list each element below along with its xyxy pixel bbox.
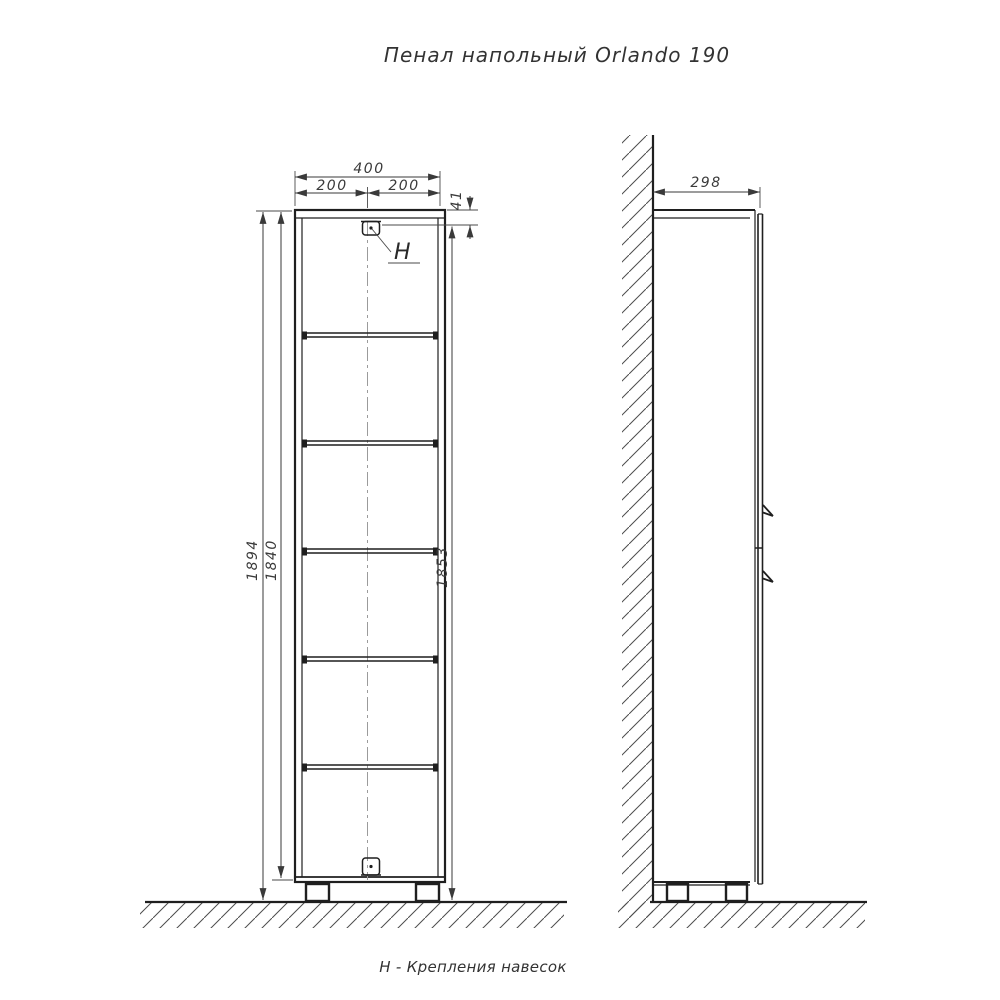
front-cabinet-carcass	[295, 210, 445, 882]
shelf-3	[302, 548, 438, 556]
front-shelves	[302, 332, 438, 772]
dim-total-width: 400	[353, 161, 384, 177]
shelf-4	[302, 656, 438, 664]
side-door-panel	[755, 214, 763, 884]
depth-dimension: 298	[653, 175, 760, 208]
upper-door-handle	[763, 505, 773, 516]
hanger-marker-label: Н	[394, 240, 411, 265]
dim-left-half-width: 200	[316, 178, 347, 194]
side-view: 298	[618, 135, 867, 928]
wall-hatch	[622, 135, 653, 918]
shelf-5	[302, 764, 438, 772]
drawing-footnote: Н - Крепления навесок	[379, 958, 566, 976]
front-view: Н 400 200 200 41 1894 1	[140, 161, 567, 928]
dim-depth: 298	[690, 175, 721, 191]
drawing-page: Пенал напольный Orlando 190	[0, 0, 1000, 1000]
top-hanger-bracket	[361, 222, 381, 236]
dim-overall-height: 1894	[245, 539, 261, 581]
hanger-offset-dimension: 41	[382, 190, 478, 239]
front-height-dimensions-left: 1894 1840	[245, 211, 293, 900]
dim-hanger-height: 1853	[435, 546, 451, 588]
front-width-dimensions: 400 200 200	[295, 161, 440, 208]
dim-right-half-width: 200	[388, 178, 419, 194]
dim-carcass-height: 1840	[264, 539, 280, 581]
drawing-title: Пенал напольный Orlando 190	[384, 43, 730, 67]
front-floor-hatch	[140, 903, 564, 928]
side-floor-hatch	[618, 903, 865, 928]
shelf-1	[302, 332, 438, 340]
side-cabinet-body	[653, 210, 755, 885]
technical-drawing-canvas: Пенал напольный Orlando 190	[0, 0, 1000, 1000]
side-feet	[667, 884, 747, 901]
dim-hanger-offset: 41	[449, 190, 465, 211]
shelf-2	[302, 440, 438, 448]
lower-door-handle	[763, 571, 773, 582]
front-feet	[306, 884, 439, 901]
bottom-hanger-bracket	[361, 858, 381, 875]
